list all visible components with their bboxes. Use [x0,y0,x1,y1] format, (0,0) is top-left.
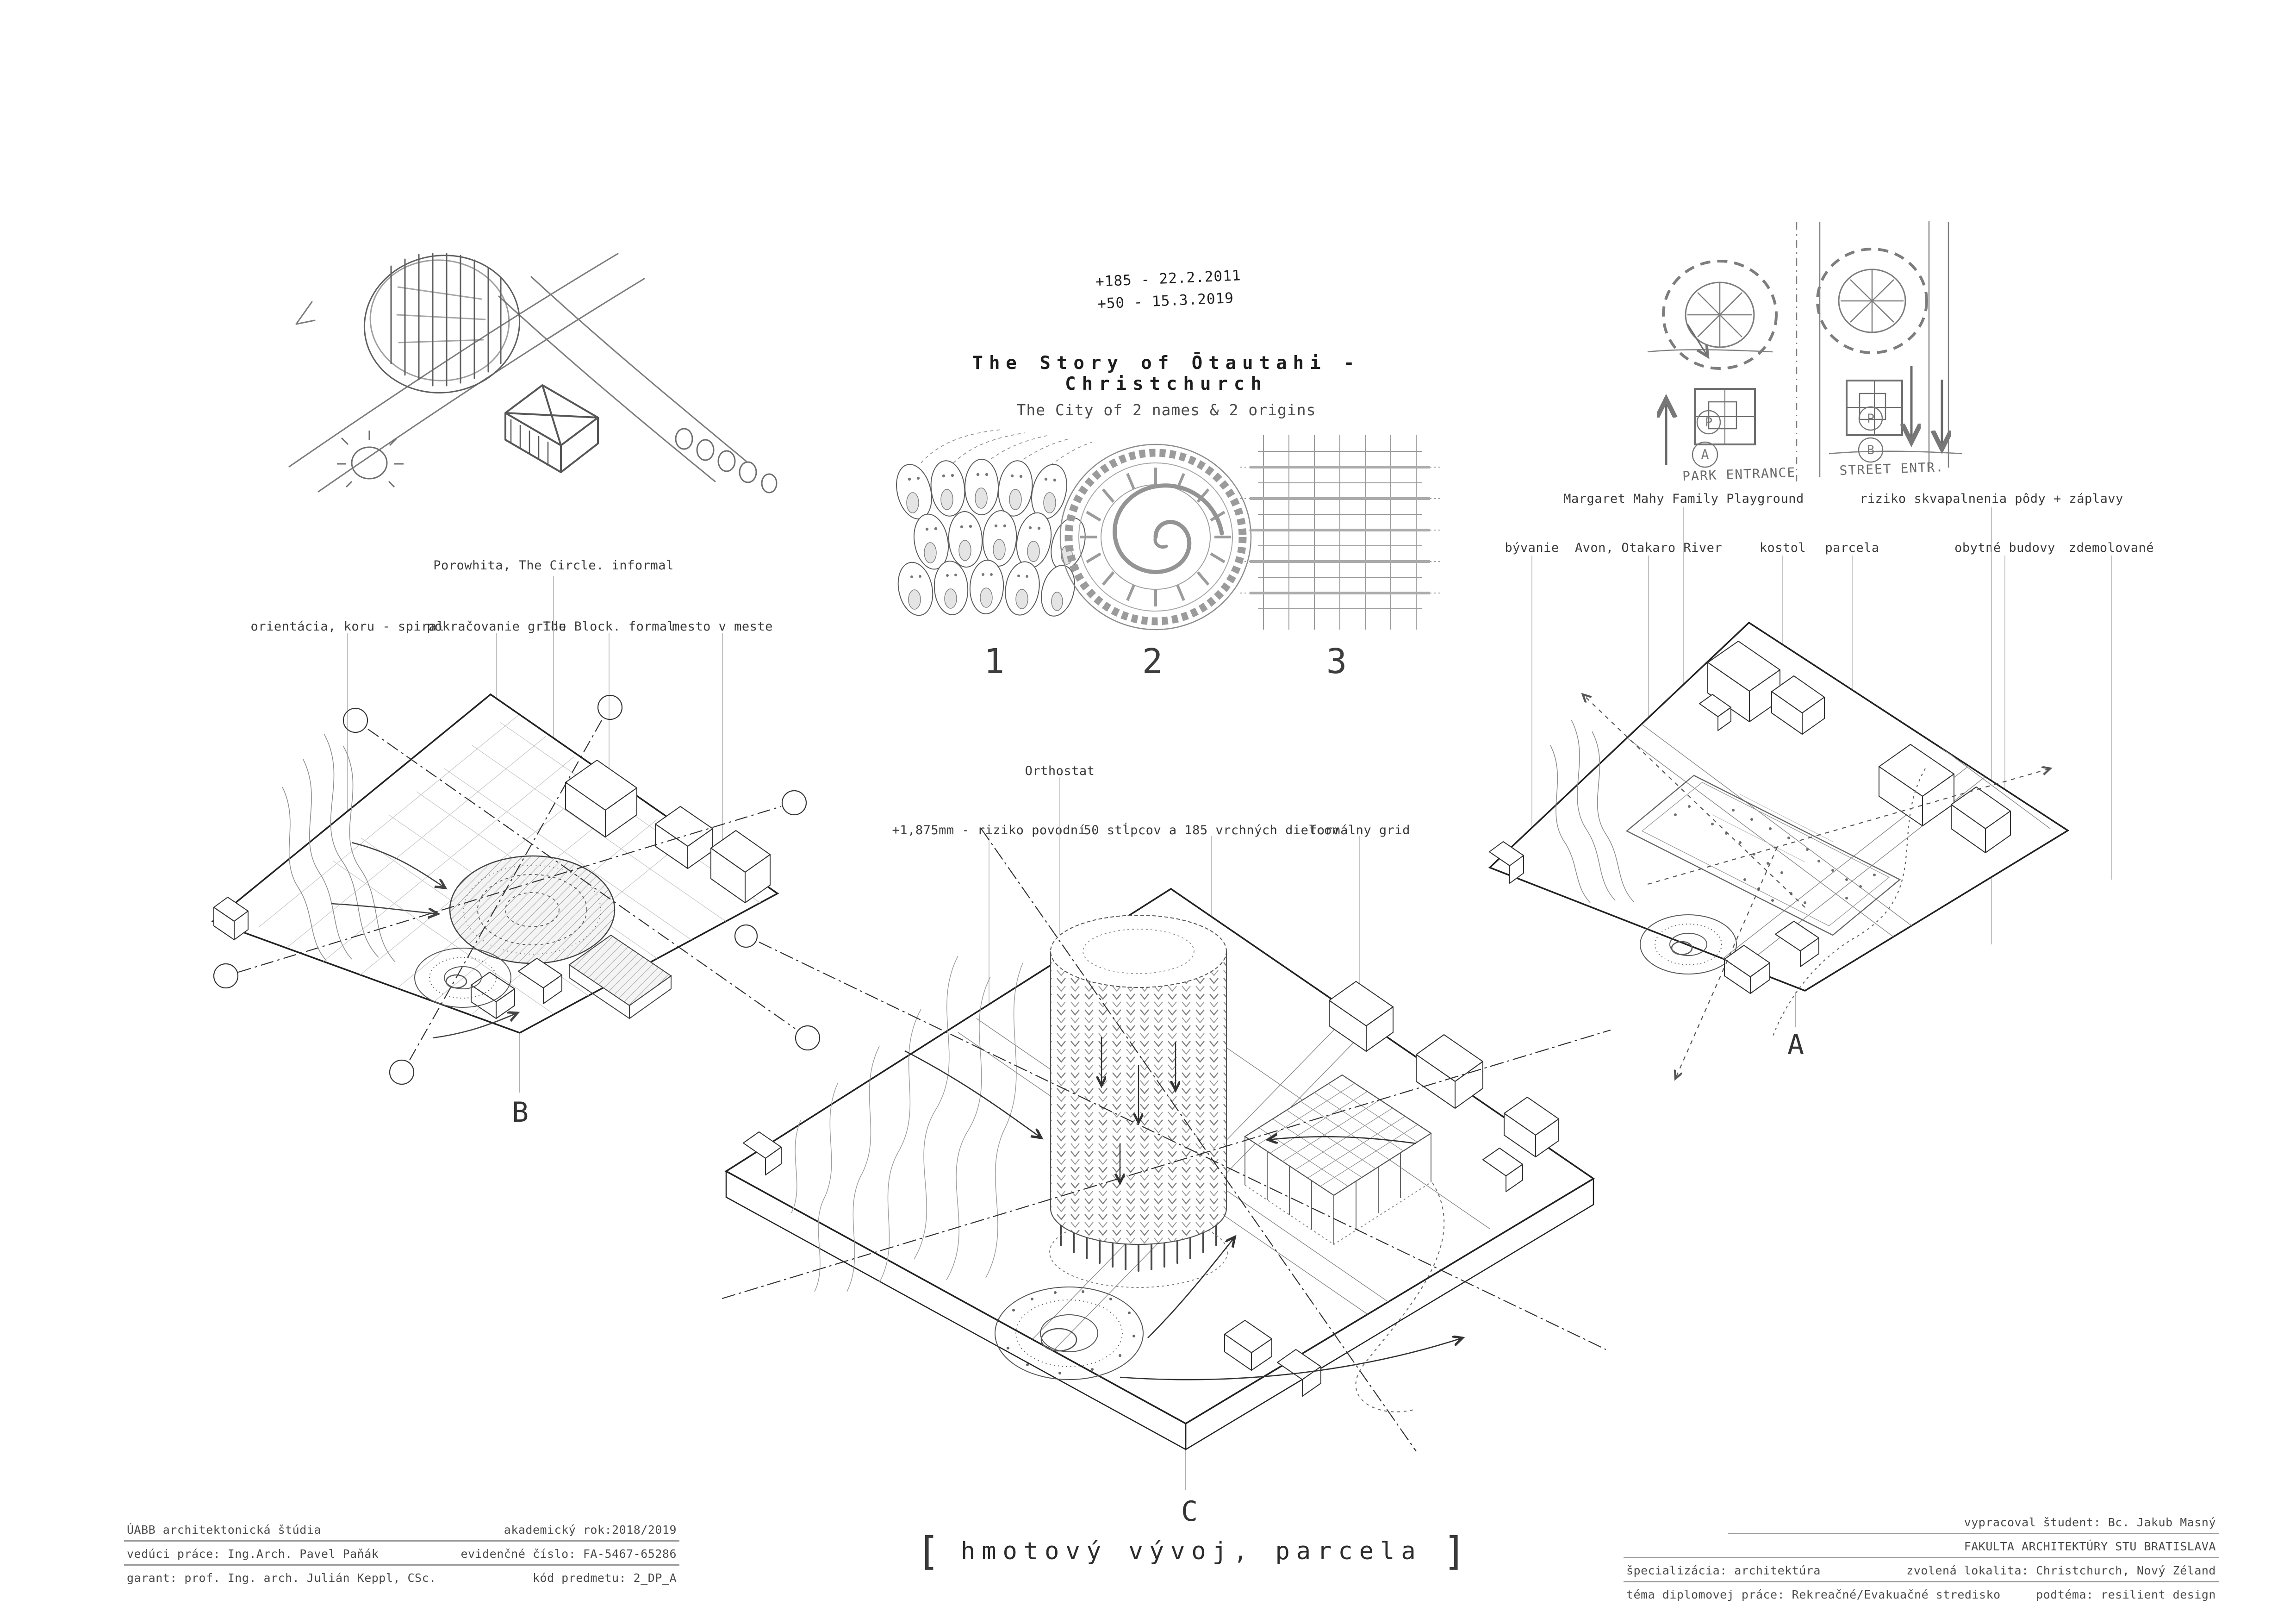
sketch-block [505,385,598,472]
sketch-street-entrance-label: STREET ENTR. [1839,459,1944,478]
caption-text: hmotový vývoj, parcela [961,1537,1422,1565]
titleblock-left: ÚABB architektonická štúdia akademický r… [124,1518,679,1588]
studio-label: ÚABB architektonická štúdia [127,1523,321,1537]
badge-p-left: P [1705,415,1712,430]
hand-sketch-plan-right: P A P B PARK ENTRANCE STREET ENTR. [1634,213,1999,491]
sketch-trees [676,429,777,493]
titleblock-row: téma diplomovej práce: Rekreačné/Evakuač… [1624,1581,2219,1605]
badge-a: A [1701,447,1709,462]
axon-b-letter: B [512,1096,529,1129]
page-subtitle: The City of 2 names & 2 origins [875,401,1458,419]
caption-bracket-right: ] [1443,1529,1467,1574]
sketch-roundel-left [1663,261,1776,369]
titleblock-row: ÚABB architektonická štúdia akademický r… [124,1518,679,1540]
supervisor: vedúci práce: Ing.Arch. Pavel Paňák [127,1547,379,1561]
axonometric-c [694,764,1624,1505]
axon-a-letter: A [1787,1029,1804,1061]
concept-number-1: 1 [984,642,1005,681]
titleblock-row: špecializácia: architektúra zvolená loka… [1624,1557,2219,1581]
diagram-formal-grid [1240,435,1440,630]
concept-number-3: 3 [1326,642,1347,681]
diagram-porowhita-circle [1060,444,1251,630]
diagram-koru-cluster [891,430,1092,620]
titleblock-row: garant: prof. Ing. arch. Julián Keppl, C… [124,1564,679,1588]
page-title: The Story of Ōtautahi - Christchurch [875,353,1458,394]
student-name: vypracoval študent: Bc. Jakub Masný [1964,1516,2216,1529]
titleblock-row: FAKULTA ARCHITEKTÚRY STU BRATISLAVA [1624,1534,2219,1557]
sketch-park-entrance-label: PARK ENTRANCE [1682,465,1796,484]
academic-year: akademický rok:2018/2019 [504,1523,677,1537]
sketch-roundel-right [1817,249,1927,353]
sketch-sun-icon [337,431,404,487]
sketch-cylinder [355,245,529,403]
concept-number-2: 2 [1142,642,1163,681]
titleblock-row: vedúci práce: Ing.Arch. Pavel Paňák evid… [124,1540,679,1564]
titleblock-row: vypracoval študent: Bc. Jakub Masný [1624,1510,2219,1533]
title-block: The Story of Ōtautahi - Christchurch The… [875,353,1458,419]
the-circle-b [450,856,615,963]
sketch-roads [289,254,746,492]
presentation-board: +185 - 22.2.2011 +50 - 15.3.2019 The Sto… [0,0,2296,1624]
badge-b: B [1867,443,1874,457]
sketch-badges: P A P B [1692,407,1883,467]
hand-sketch-plan-left [259,199,810,500]
chosen-location: zvolená lokalita: Christchurch, Nový Zél… [1906,1564,2216,1577]
record-number: evidenčné číslo: FA-5467-65286 [460,1547,677,1561]
sheet-caption: [ hmotový vývoj, parcela ] [916,1529,1388,1574]
thesis-subtopic: podtéma: resilient design [2036,1588,2216,1601]
concept-diagrams [870,426,1453,634]
badge-p-right: P [1867,412,1874,426]
titleblock-right: vypracoval študent: Bc. Jakub Masný FAKU… [1624,1510,2219,1605]
faculty-name: FAKULTA ARCHITEKTÚRY STU BRATISLAVA [1964,1540,2216,1553]
course-code: kód predmetu: 2_DP_A [533,1571,677,1585]
axon-c-letter: C [1181,1495,1198,1528]
caption-bracket-left: [ [916,1529,940,1574]
koru-spiral [1115,486,1222,572]
sketch-block-left [1695,389,1755,444]
guarantor: garant: prof. Ing. arch. Julián Keppl, C… [127,1571,436,1585]
handwritten-dates: +185 - 22.2.2011 +50 - 15.3.2019 [1095,264,1243,315]
thesis-topic: téma diplomovej práce: Rekreačné/Evakuač… [1626,1588,2001,1601]
specialization: špecializácia: architektúra [1626,1564,1821,1577]
orthostat-cylinder [1050,915,1227,1287]
label-porowhita: Porowhita, The Circle. informal [433,558,673,573]
